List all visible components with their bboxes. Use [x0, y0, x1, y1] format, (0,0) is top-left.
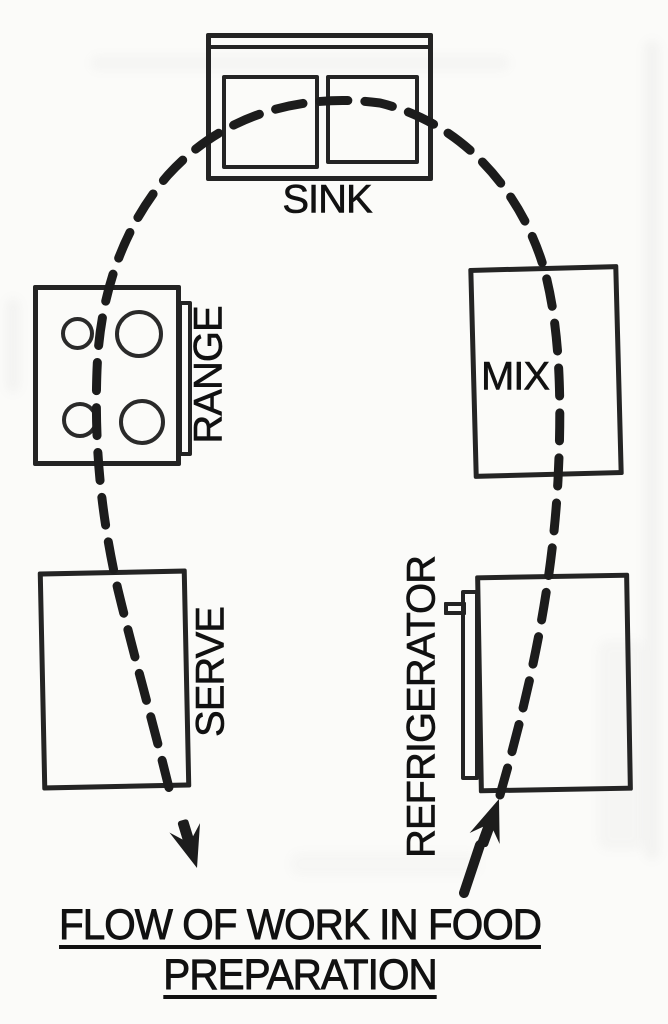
- scan-artifact: [290, 852, 480, 876]
- mix-label: MIX: [481, 355, 549, 400]
- sink-label: SINK: [282, 178, 371, 223]
- sink-basin-right: [326, 75, 419, 164]
- range-burner-bottom-right: [119, 399, 165, 445]
- diagram-title: FLOW OF WORK IN FOOD PREPARATION: [18, 901, 582, 1001]
- serve-label: SERVE: [189, 607, 234, 737]
- scan-artifact: [6, 298, 20, 393]
- range-body: [33, 285, 181, 466]
- title-line-2: PREPARATION: [18, 951, 582, 1001]
- food-prep-flow-diagram: SINK RANGE MIX SERVE REFRIGERATOR FLOW O…: [0, 0, 668, 1024]
- serve-table: [38, 568, 192, 790]
- range-burner-top-right: [115, 310, 163, 358]
- range-burner-top-left: [61, 317, 94, 350]
- range-burner-bottom-left: [62, 402, 98, 438]
- scan-artifact: [644, 40, 660, 860]
- sink-ledge-line: [211, 45, 428, 49]
- sink-basin-left: [222, 75, 319, 169]
- title-line-1: FLOW OF WORK IN FOOD: [18, 901, 582, 951]
- refrigerator-body: [475, 573, 633, 794]
- flow-arrowhead-start: [467, 794, 514, 852]
- refrigerator-label: REFRIGERATOR: [400, 556, 445, 858]
- range-label: RANGE: [187, 306, 232, 443]
- flow-arrowhead-end: [167, 816, 212, 873]
- refrigerator-handle: [444, 602, 466, 615]
- refrigerator-door-panel: [461, 590, 479, 780]
